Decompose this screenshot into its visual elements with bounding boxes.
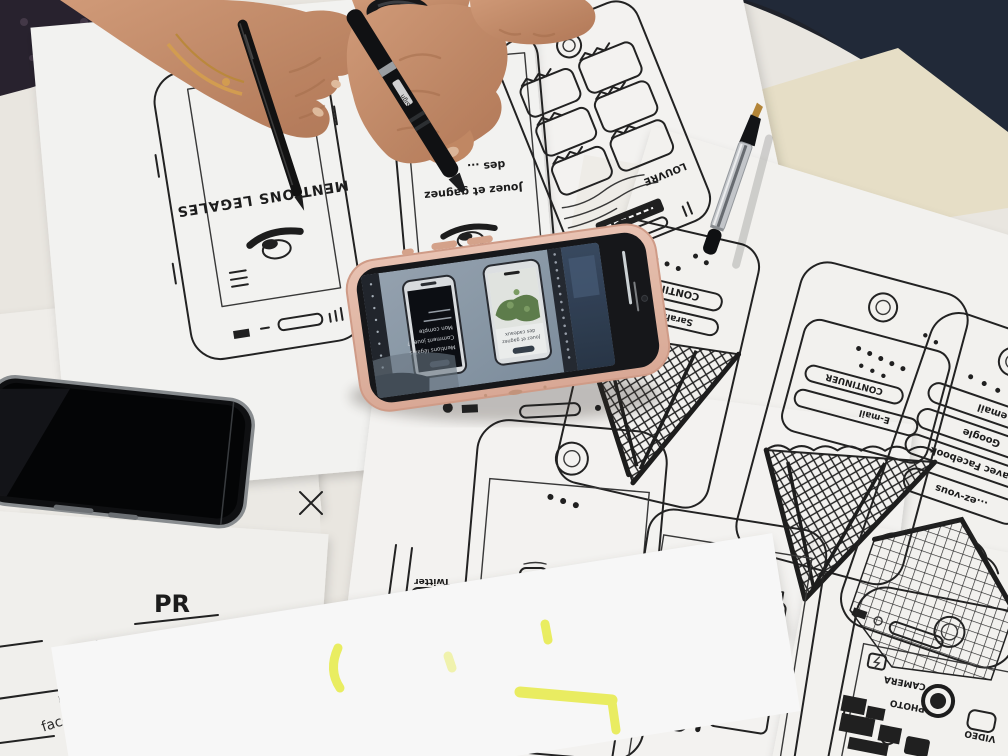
- photo-scene: PR DL APP n° Jeu facebook MENTIONS LEGAL…: [0, 0, 1008, 756]
- photo-canvas: PR DL APP n° Jeu facebook MENTIONS LEGAL…: [0, 0, 1008, 756]
- vignette: [0, 0, 1008, 756]
